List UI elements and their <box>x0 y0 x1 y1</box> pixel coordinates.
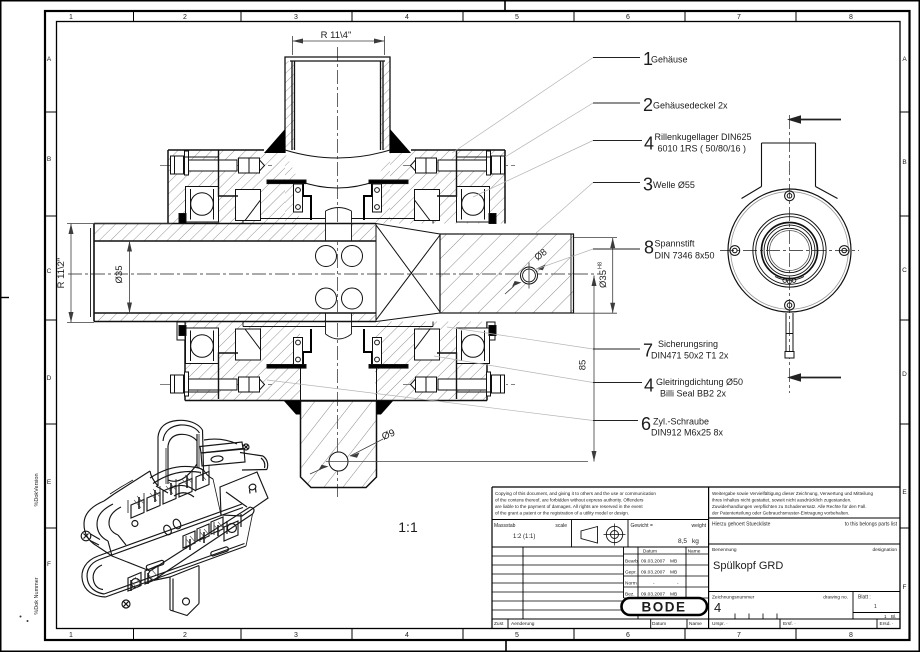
svg-text:8,5: 8,5 <box>678 538 687 545</box>
svg-text:Billi Seal BB2 2x: Billi Seal BB2 2x <box>660 389 727 399</box>
svg-text:Sicherungsring: Sicherungsring <box>658 339 718 349</box>
svg-text:BODE: BODE <box>641 600 686 615</box>
svg-text:1: 1 <box>884 614 887 619</box>
svg-text:Ersf. ·: Ersf. · <box>783 621 796 627</box>
svg-text:A: A <box>47 56 52 63</box>
svg-text:8: 8 <box>849 14 853 21</box>
svg-text:8: 8 <box>644 238 654 258</box>
svg-text:Urspr. ·: Urspr. · <box>712 621 728 627</box>
svg-text:4: 4 <box>714 600 721 615</box>
svg-text:09.03.2007: 09.03.2007 <box>641 570 665 576</box>
svg-text:Copying of this document, and: Copying of this document, and giving it … <box>495 491 656 496</box>
svg-text:Ø35: Ø35 <box>598 270 609 288</box>
svg-text:Massstab: Massstab <box>494 523 516 529</box>
svg-text:%Dok Nummer: %Dok Nummer <box>34 577 40 614</box>
svg-text:2: 2 <box>183 14 187 21</box>
svg-text:5: 5 <box>515 14 519 21</box>
svg-text:6010 1RS ( 50/80/16 ): 6010 1RS ( 50/80/16 ) <box>658 144 747 154</box>
svg-text:scale: scale <box>555 523 567 529</box>
svg-text:3: 3 <box>294 14 298 21</box>
svg-text:3: 3 <box>294 632 298 639</box>
svg-text:MB: MB <box>670 559 677 565</box>
svg-text:Weitergabe sowie Vervielfältig: Weitergabe sowie Vervielfältigung dieser… <box>712 491 873 496</box>
svg-text:Zuwiderhandlungen verpflichten: Zuwiderhandlungen verpflichten zu Schade… <box>712 504 867 509</box>
svg-text:Zust: Zust <box>494 621 504 627</box>
svg-text:E: E <box>47 479 52 486</box>
svg-text:H8: H8 <box>598 262 604 269</box>
svg-text:Datum: Datum <box>643 549 657 555</box>
svg-text:7: 7 <box>737 632 741 639</box>
svg-text:A: A <box>902 56 907 63</box>
svg-text:7: 7 <box>737 14 741 21</box>
svg-text:MB: MB <box>670 592 677 598</box>
svg-text:Datum: Datum <box>652 621 666 627</box>
svg-text:Bearb.: Bearb. <box>625 559 639 565</box>
svg-text:of the contens thereof, are fo: of the contens thereof, are forbidden wi… <box>495 498 644 503</box>
svg-text:Norm: Norm <box>625 581 637 587</box>
svg-text:F: F <box>903 584 907 591</box>
svg-text:F: F <box>47 561 51 568</box>
svg-text:DIN471 50x2 T1 2x: DIN471 50x2 T1 2x <box>651 351 729 361</box>
svg-text:1: 1 <box>69 14 73 21</box>
svg-text:Gewicht =: Gewicht = <box>631 523 653 529</box>
svg-text:Name: Name <box>688 549 701 555</box>
svg-text:weight: weight <box>692 523 707 529</box>
svg-text:4: 4 <box>405 14 409 21</box>
svg-text:Gepr.: Gepr. <box>625 570 637 576</box>
svg-text:1:1: 1:1 <box>398 519 418 535</box>
svg-text:C: C <box>47 268 52 275</box>
svg-text:85: 85 <box>578 360 589 371</box>
svg-text:Bl.: Bl. <box>891 614 896 619</box>
svg-text:8: 8 <box>849 632 853 639</box>
svg-text:C: C <box>902 267 907 274</box>
svg-text:Bez.: Bez. <box>625 592 635 598</box>
svg-text:R 11\2": R 11\2" <box>56 258 67 289</box>
svg-text:to this belongs parts list: to this belongs parts list <box>845 522 898 528</box>
svg-text:Benennung: Benennung <box>712 547 737 553</box>
svg-text:2: 2 <box>183 632 187 639</box>
svg-text:DIN912 M6x25 8x: DIN912 M6x25 8x <box>651 428 724 438</box>
svg-text:kg: kg <box>692 538 699 545</box>
svg-text:6: 6 <box>626 14 630 21</box>
svg-text:1: 1 <box>874 604 877 610</box>
svg-text:Spannstift: Spannstift <box>655 239 696 249</box>
svg-text:1: 1 <box>69 632 73 639</box>
svg-text:B: B <box>47 156 51 163</box>
svg-text:of the grant a patent or the r: of the grant a patent or the registratio… <box>495 511 629 516</box>
svg-text:Welle Ø55: Welle Ø55 <box>653 180 695 190</box>
svg-text:2: 2 <box>643 95 653 115</box>
svg-text:ihres Inhaltes nicht gestattet: ihres Inhaltes nicht gestattet, soweit n… <box>712 498 851 503</box>
svg-text:Spülkopf GRD: Spülkopf GRD <box>713 560 783 572</box>
svg-text:Rillenkugellager DIN625: Rillenkugellager DIN625 <box>655 132 752 142</box>
svg-text:Ersd. ·: Ersd. · <box>880 621 895 627</box>
svg-text:5: 5 <box>515 632 519 639</box>
svg-text:D: D <box>902 371 907 378</box>
svg-text:DIN 7346 8x50: DIN 7346 8x50 <box>655 251 715 261</box>
svg-text:09.03.2007: 09.03.2007 <box>641 592 665 598</box>
svg-text:Gehäusedeckel 2x: Gehäusedeckel 2x <box>653 101 728 111</box>
svg-text:Ø35: Ø35 <box>114 266 125 284</box>
svg-text:Blatt :: Blatt : <box>858 595 871 601</box>
svg-text:MB: MB <box>670 570 677 576</box>
svg-text:6: 6 <box>641 414 651 434</box>
svg-text:drawing no.: drawing no. <box>823 595 848 601</box>
svg-text:R 11\4": R 11\4" <box>321 30 352 41</box>
svg-text:4: 4 <box>644 134 654 154</box>
svg-text:Hierzu gehoert Stueckliste: Hierzu gehoert Stueckliste <box>712 522 771 528</box>
svg-text:09.03.2007: 09.03.2007 <box>641 559 665 565</box>
svg-text:are liable to the payment of d: are liable to the payment of damages. Al… <box>495 504 643 509</box>
svg-text:B: B <box>902 159 906 166</box>
svg-text:Gehäuse: Gehäuse <box>651 55 688 65</box>
svg-text:%DokVersion: %DokVersion <box>34 473 40 506</box>
svg-text:6: 6 <box>626 632 630 639</box>
svg-text:der Patenterteilung oder Gebra: der Patenterteilung oder Gebrauchsmuster… <box>712 511 849 516</box>
svg-text:1:2 (1:1): 1:2 (1:1) <box>513 534 535 540</box>
svg-text:4: 4 <box>644 376 654 396</box>
svg-text:3: 3 <box>643 175 653 195</box>
svg-text:Name: Name <box>689 621 702 627</box>
svg-text:designation: designation <box>872 547 897 553</box>
svg-text:E: E <box>902 489 907 496</box>
svg-text:Zyl.-Schraube: Zyl.-Schraube <box>653 417 709 427</box>
svg-text:Aenderung: Aenderung <box>511 621 535 627</box>
svg-text:4: 4 <box>405 632 409 639</box>
svg-text:Gleitringdichtung Ø50: Gleitringdichtung Ø50 <box>656 377 743 387</box>
svg-text:D: D <box>47 375 52 382</box>
